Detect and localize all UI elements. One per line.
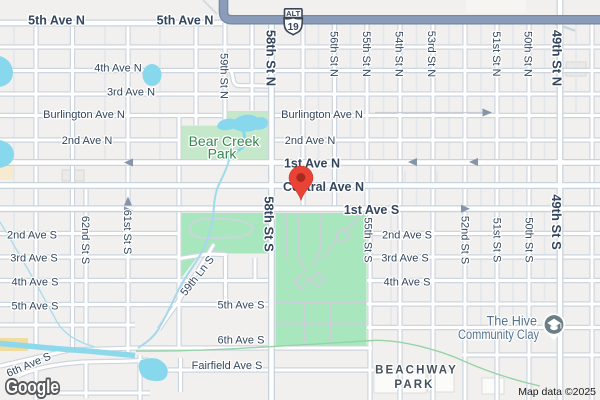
svg-text:4th Ave S: 4th Ave S xyxy=(384,277,431,289)
svg-text:58th St N: 58th St N xyxy=(263,30,278,86)
svg-text:2nd Ave N: 2nd Ave N xyxy=(62,135,113,147)
svg-text:50th St N: 50th St N xyxy=(521,31,533,77)
svg-text:3rd Ave N: 3rd Ave N xyxy=(107,87,155,99)
svg-text:55th St S: 55th St S xyxy=(361,217,373,262)
svg-text:61st St S: 61st St S xyxy=(121,210,133,255)
svg-text:Fairfield Ave S: Fairfield Ave S xyxy=(192,360,263,372)
svg-text:3rd Ave S: 3rd Ave S xyxy=(381,253,429,265)
svg-text:50th St S: 50th St S xyxy=(522,217,534,262)
svg-text:59th St N: 59th St N xyxy=(217,53,229,99)
svg-text:53rd St N: 53rd St N xyxy=(425,31,437,78)
svg-text:3rd Ave S: 3rd Ave S xyxy=(10,253,58,265)
svg-text:1st Ave N: 1st Ave N xyxy=(284,157,340,171)
svg-text:1st Ave S: 1st Ave S xyxy=(344,203,399,217)
svg-text:55th St N: 55th St N xyxy=(360,31,372,77)
svg-text:58th St S: 58th St S xyxy=(261,196,276,252)
svg-text:Park: Park xyxy=(208,146,238,162)
svg-text:19: 19 xyxy=(288,22,300,33)
svg-text:2nd Ave S: 2nd Ave S xyxy=(7,230,57,242)
svg-text:49th St N: 49th St N xyxy=(549,30,564,86)
svg-text:Community Clay: Community Clay xyxy=(458,327,539,342)
svg-text:2nd Ave N: 2nd Ave N xyxy=(285,135,336,147)
svg-text:2nd Ave S: 2nd Ave S xyxy=(382,230,432,242)
svg-text:5th Ave S: 5th Ave S xyxy=(12,301,59,313)
svg-text:51st St N: 51st St N xyxy=(490,31,502,76)
svg-text:4th Ave S: 4th Ave S xyxy=(12,277,59,289)
svg-text:5th Ave S: 5th Ave S xyxy=(218,300,265,312)
svg-text:51st St S: 51st St S xyxy=(490,218,502,263)
svg-text:62nd St S: 62nd St S xyxy=(79,216,91,264)
svg-text:49th St S: 49th St S xyxy=(549,194,564,250)
svg-text:PARK: PARK xyxy=(394,379,434,391)
svg-text:Burlington Ave N: Burlington Ave N xyxy=(281,109,363,121)
svg-text:6th Ave S: 6th Ave S xyxy=(218,335,265,347)
svg-text:5th Ave N: 5th Ave N xyxy=(28,14,85,28)
svg-text:BEACHWAY: BEACHWAY xyxy=(375,365,458,377)
svg-text:Burlington Ave N: Burlington Ave N xyxy=(43,109,125,121)
svg-text:ALT: ALT xyxy=(286,9,300,18)
svg-text:Map data ©2025: Map data ©2025 xyxy=(518,386,596,398)
svg-text:4th Ave N: 4th Ave N xyxy=(94,63,142,75)
svg-text:Google: Google xyxy=(6,376,59,397)
svg-text:5th Ave N: 5th Ave N xyxy=(157,14,214,28)
svg-text:56th St N: 56th St N xyxy=(327,31,339,77)
svg-text:52nd St S: 52nd St S xyxy=(458,216,470,264)
svg-text:54th St N: 54th St N xyxy=(392,31,404,77)
